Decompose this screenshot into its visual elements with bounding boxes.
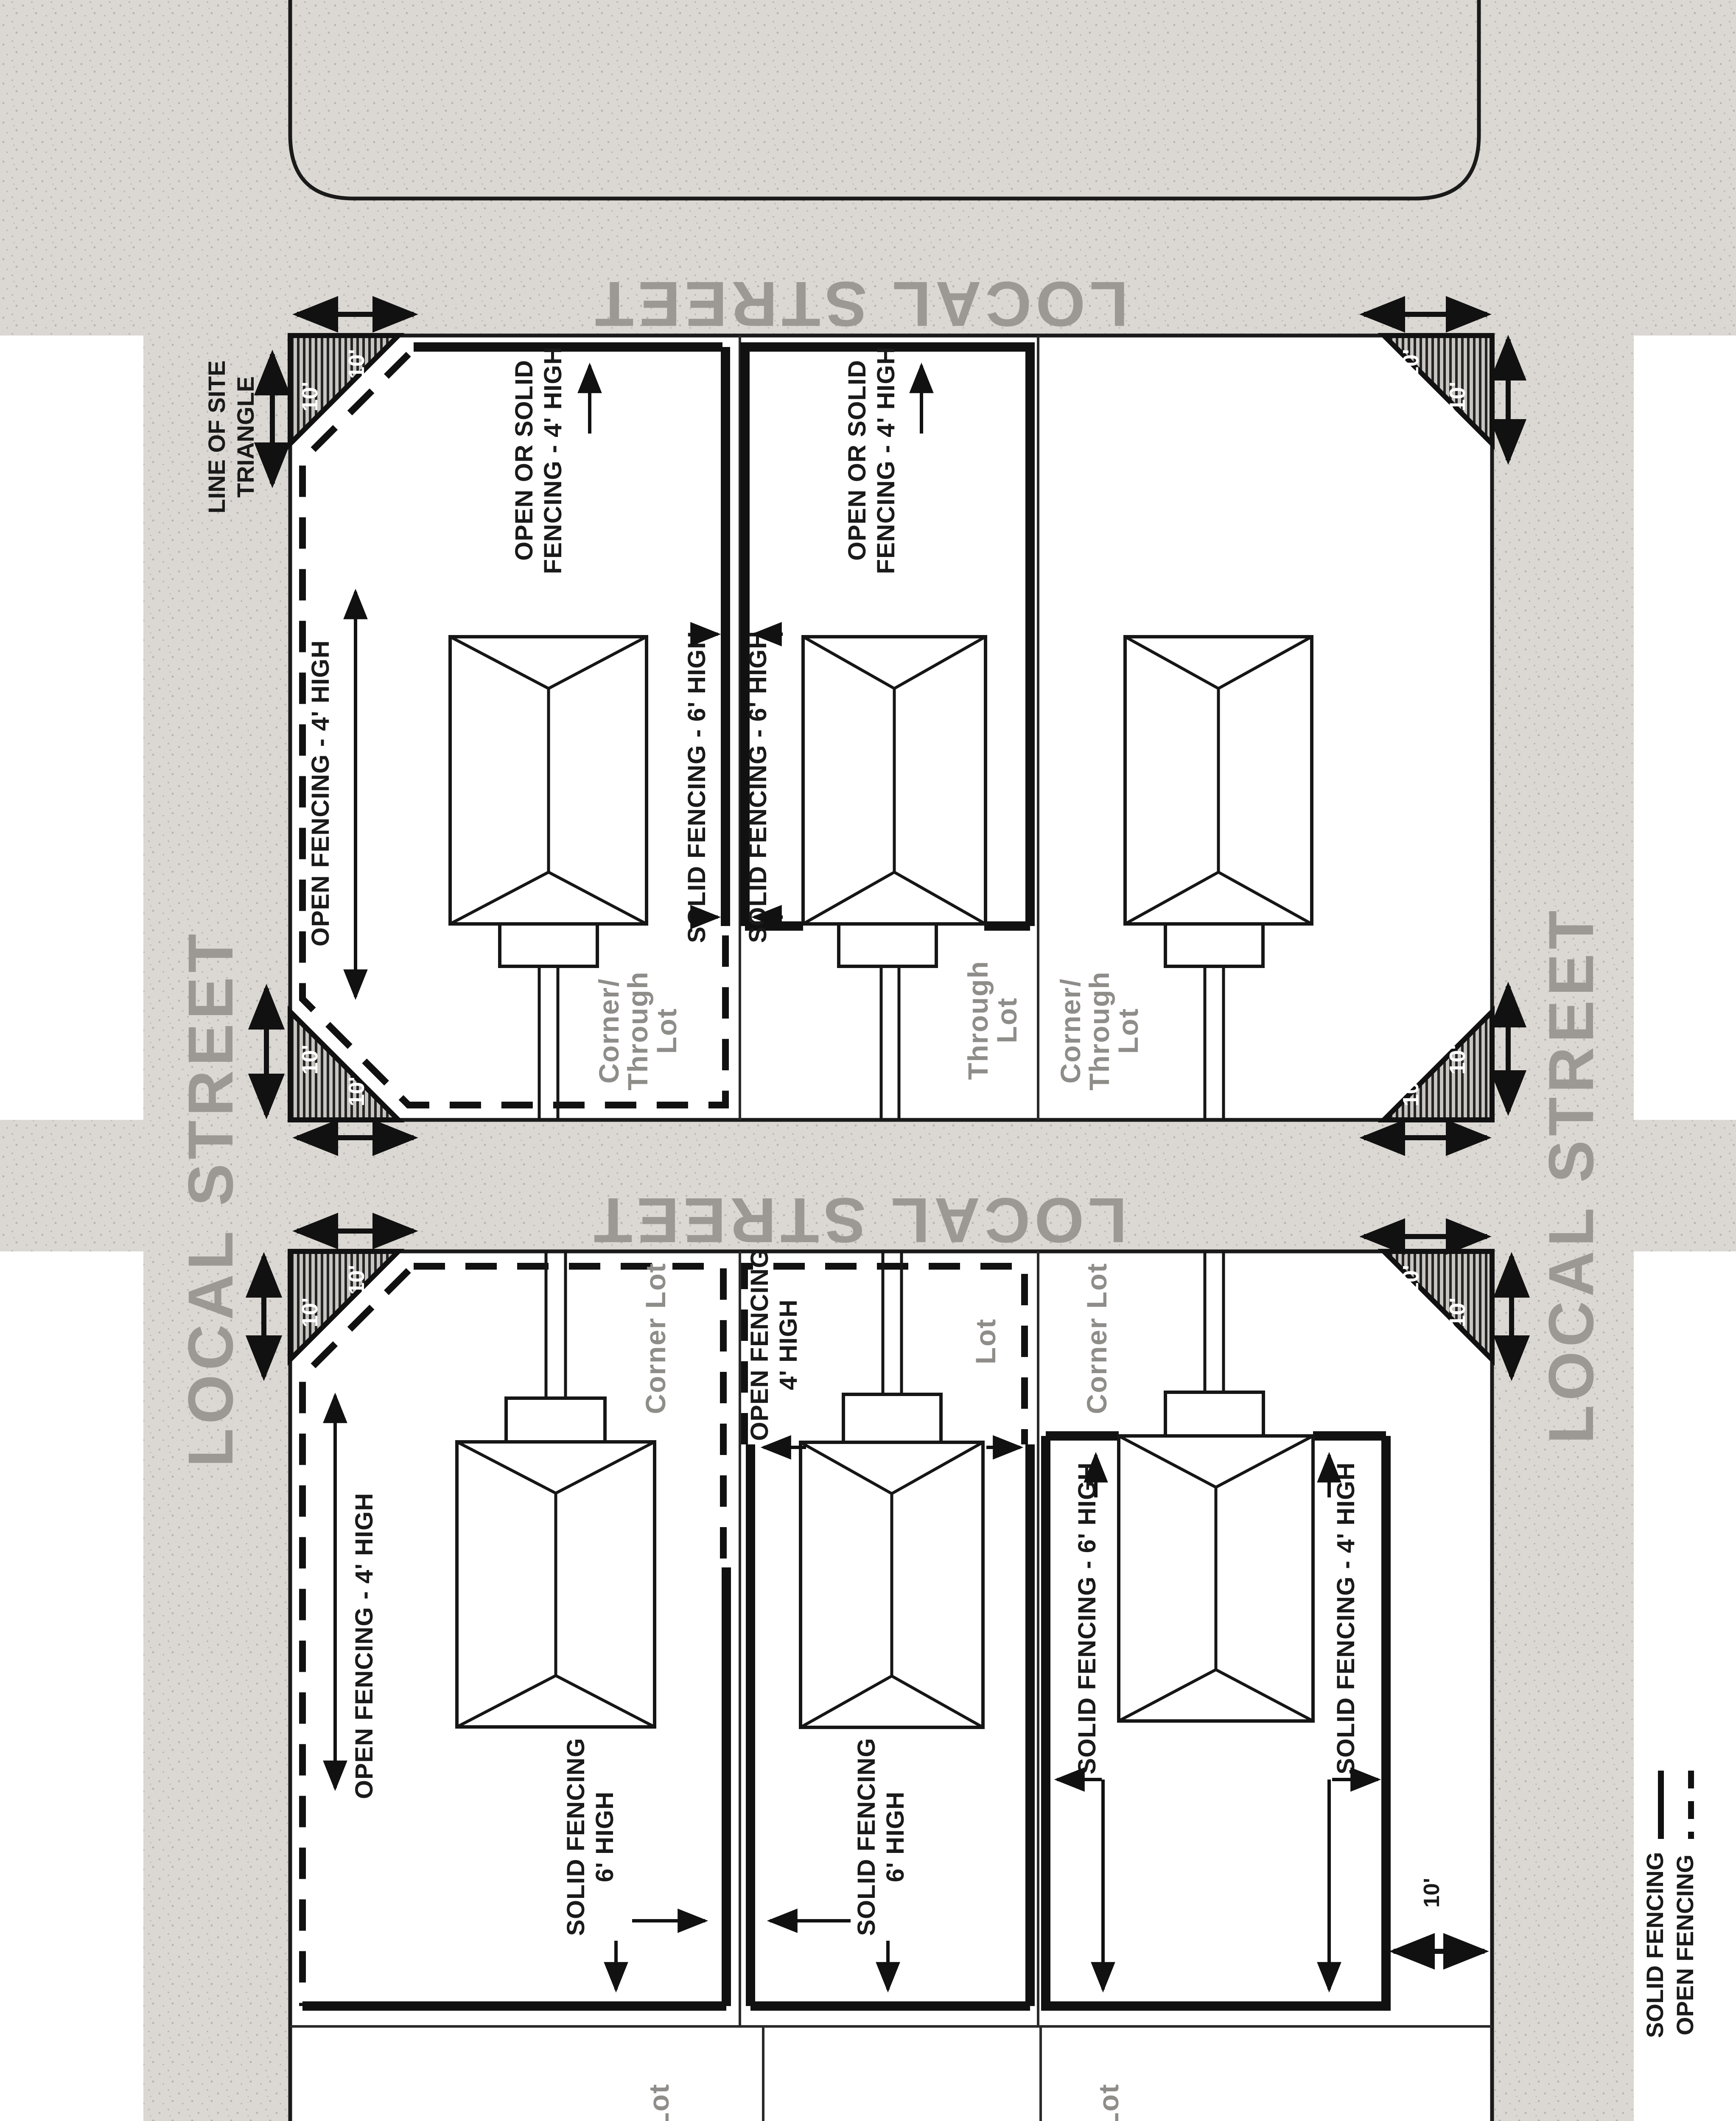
left-street-label: LOCAL STREET — [175, 929, 246, 1467]
bottom-row-lots: Corner Lot Lot Corner Lot — [460, 2083, 1302, 2121]
lot3-label-line1: Corner/ — [1055, 978, 1086, 1084]
sight-triangle-lot6-ne: 10' 10' — [1364, 1237, 1512, 1377]
lot5-solid-fencing-line1: SOLID FENCING — [853, 1738, 880, 1936]
garage — [839, 924, 936, 966]
triangle-10ft-label: 10' — [298, 1045, 322, 1074]
lot-6-corner: SOLID FENCING - 6' HIGH SOLID FENCING - … — [1046, 1251, 1484, 2006]
sight-triangle-lot3-ne: 10' 10' — [1364, 314, 1508, 460]
triangle-10ft-label: 10' — [1399, 349, 1423, 379]
lot-3-corner-through: Corner/ Through Lot — [1055, 637, 1312, 1120]
triangle-10ft-label: 10' — [298, 382, 322, 411]
lot1-open-fencing-note: OPEN FENCING - 4' HIGH — [307, 640, 334, 946]
lot4-solid-fencing-line2: 6' HIGH — [591, 1791, 619, 1882]
garage — [843, 1394, 941, 1442]
middle-street-label: LOCAL STREET — [589, 1185, 1127, 1256]
lot1-open-or-solid-line2: FENCING - 4' HIGH — [539, 347, 567, 574]
bottom-row-lot3-label: Corner Lot — [1093, 2083, 1124, 2121]
triangle-10ft-label: 10' — [344, 1265, 369, 1295]
lot5-open-fencing-note: OPEN FENCING 4' HIGH — [746, 1248, 802, 1441]
right-street-label: LOCAL STREET — [1535, 906, 1607, 1444]
lot4-open-fencing-note: OPEN FENCING - 4' HIGH — [350, 1493, 378, 1799]
lot3-label: Corner/ Through Lot — [1055, 971, 1144, 1091]
bottom-row-lot1-label: Corner Lot — [643, 2083, 675, 2121]
lot4-label: Corner Lot — [640, 1262, 671, 1414]
sight-triangle-lot3-se: 10' 10' — [1364, 986, 1508, 1138]
driveway — [1205, 966, 1224, 1120]
lot6-solid-4-note: SOLID FENCING - 4' HIGH — [1332, 1462, 1360, 1774]
lot1-open-or-solid-line1: OPEN OR SOLID — [510, 360, 538, 561]
line-of-site-caption-line1: LINE OF SITE — [203, 361, 230, 514]
lot1-open-or-solid-note: OPEN OR SOLID FENCING - 4' HIGH — [510, 347, 567, 574]
lot2-solid-fencing-note: SOLID FENCING - 6' HIGH — [744, 631, 772, 943]
driveway — [546, 1251, 566, 1398]
triangle-10ft-label: 10' — [1399, 1077, 1423, 1106]
lot2-open-or-solid-line1: OPEN OR SOLID — [843, 360, 871, 561]
triangle-10ft-label: 10' — [344, 1077, 369, 1106]
lot-2-through: OPEN OR SOLID FENCING - 4' HIGH SOLID FE… — [744, 347, 1030, 1120]
lot2-label-line1: Through — [962, 960, 994, 1080]
driveway — [539, 966, 558, 1120]
driveway — [1205, 1251, 1224, 1392]
lot5-solid-fencing-line2: 6' HIGH — [882, 1791, 909, 1882]
legend-open-label: OPEN FENCING — [1672, 1855, 1698, 2035]
driveway — [883, 1251, 902, 1394]
lot2-open-or-solid-note: OPEN OR SOLID FENCING - 4' HIGH — [843, 347, 900, 574]
lot5-label: Lot — [970, 1318, 1001, 1365]
sight-triangle-lot1-sw: 10' 10' — [266, 988, 414, 1138]
triangle-10ft-label: 10' — [1445, 382, 1470, 411]
lot3-label-line3: Lot — [1112, 1008, 1144, 1054]
lot1-label-line2: Through — [622, 971, 653, 1091]
lot-4-corner: OPEN FENCING - 4' HIGH SOLID FENCING 6' … — [302, 1251, 726, 2006]
lot5-open-fencing-line1: OPEN FENCING — [746, 1248, 773, 1441]
legend: SOLID FENCING OPEN FENCING — [1641, 1771, 1698, 2038]
garage — [500, 924, 597, 966]
lot2-label: Through Lot — [962, 960, 1022, 1080]
lot6-label: Corner Lot — [1081, 1262, 1112, 1414]
lot-5-interior: OPEN FENCING 4' HIGH SOLID FENCING 6' HI… — [745, 1248, 1030, 2006]
lot1-label-line1: Corner/ — [593, 978, 624, 1084]
garage — [1165, 1392, 1263, 1436]
top-street-label: LOCAL STREET — [591, 269, 1128, 340]
lot1-label-line3: Lot — [651, 1008, 682, 1054]
triangle-10ft-label: 10' — [1445, 1298, 1470, 1327]
garage — [1165, 924, 1263, 966]
lot4-solid-fencing-line1: SOLID FENCING — [562, 1738, 590, 1936]
lot1-label: Corner/ Through Lot — [593, 971, 682, 1091]
garage — [506, 1398, 605, 1442]
lot2-label-line2: Lot — [991, 997, 1022, 1044]
triangle-10ft-label: 10' — [1399, 1265, 1423, 1295]
lot6-solid-6-note: SOLID FENCING - 6' HIGH — [1073, 1462, 1101, 1774]
driveway — [881, 966, 899, 1120]
lot2-open-or-solid-line2: FENCING - 4' HIGH — [872, 347, 900, 574]
lot4-solid-fencing-note: SOLID FENCING 6' HIGH — [562, 1738, 619, 1936]
triangle-10ft-label: 10' — [298, 1298, 322, 1327]
lot5-solid-fencing-note: SOLID FENCING 6' HIGH — [853, 1738, 909, 1936]
sight-triangle-lot1-nw: 10' 10' — [272, 314, 414, 484]
lot6-10ft-setback-label: 10' — [1420, 1878, 1444, 1908]
lot1-solid-fencing-note: SOLID FENCING - 6' HIGH — [683, 631, 711, 943]
line-of-site-caption-line2: TRIANGLE — [232, 376, 259, 498]
legend-solid-label: SOLID FENCING — [1641, 1852, 1668, 2038]
lot5-open-fencing-line2: 4' HIGH — [775, 1299, 802, 1390]
triangle-10ft-label: 10' — [1445, 1045, 1470, 1074]
triangle-10ft-label: 10' — [344, 349, 369, 379]
lot-1-corner-through: OPEN FENCING - 4' HIGH OPEN OR SOLID FEN… — [302, 347, 725, 1120]
lot3-label-line2: Through — [1084, 971, 1115, 1091]
